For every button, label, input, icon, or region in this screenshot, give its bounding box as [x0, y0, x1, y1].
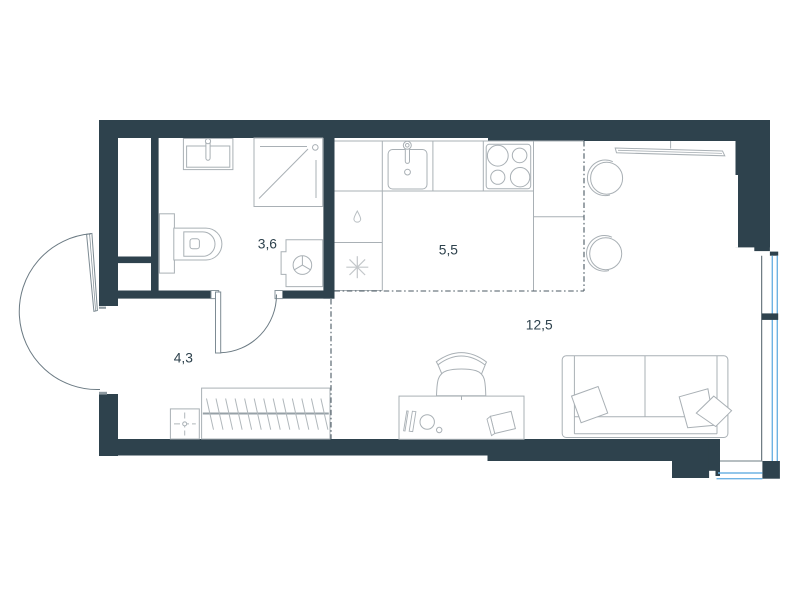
- svg-text:5,5: 5,5: [439, 243, 459, 258]
- svg-text:12,5: 12,5: [526, 317, 553, 332]
- svg-text:4,3: 4,3: [174, 351, 194, 366]
- svg-text:3,6: 3,6: [258, 236, 278, 251]
